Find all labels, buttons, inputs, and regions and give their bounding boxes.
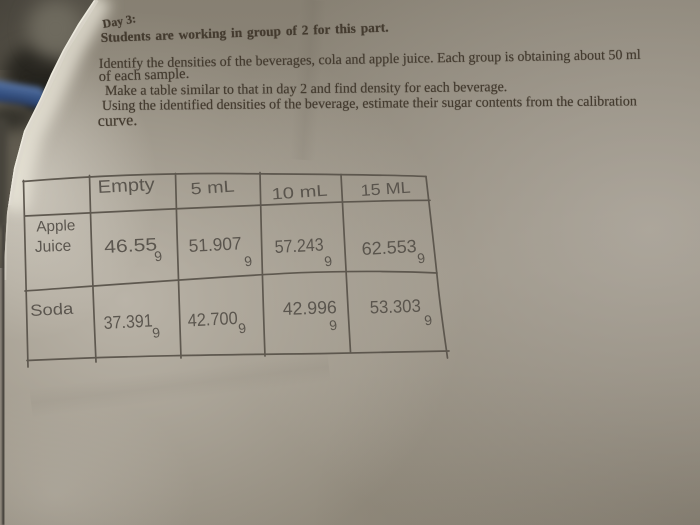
svg-text:51.907: 51.907 xyxy=(188,233,242,256)
svg-text:15 ML: 15 ML xyxy=(360,180,411,200)
svg-text:9: 9 xyxy=(423,312,433,329)
svg-text:46.55: 46.55 xyxy=(104,234,158,257)
svg-text:37.391: 37.391 xyxy=(103,310,153,333)
svg-text:10 mL: 10 mL xyxy=(271,183,328,204)
svg-text:Soda: Soda xyxy=(30,301,74,320)
svg-text:9: 9 xyxy=(323,253,333,270)
svg-text:Empty: Empty xyxy=(97,174,155,197)
svg-text:42.996: 42.996 xyxy=(282,297,337,319)
svg-text:9: 9 xyxy=(416,250,426,267)
svg-text:9: 9 xyxy=(153,248,163,265)
svg-text:9: 9 xyxy=(328,317,338,334)
svg-text:Juice: Juice xyxy=(35,238,72,256)
svg-text:42.700: 42.700 xyxy=(187,308,238,331)
svg-text:57.243: 57.243 xyxy=(274,234,324,257)
svg-text:53.303: 53.303 xyxy=(369,296,421,318)
svg-text:62.553: 62.553 xyxy=(361,236,417,259)
svg-text:9: 9 xyxy=(151,324,161,341)
svg-text:9: 9 xyxy=(243,253,253,270)
svg-text:Apple: Apple xyxy=(36,217,76,235)
svg-text:5 mL: 5 mL xyxy=(190,177,235,198)
svg-text:9: 9 xyxy=(237,320,247,337)
